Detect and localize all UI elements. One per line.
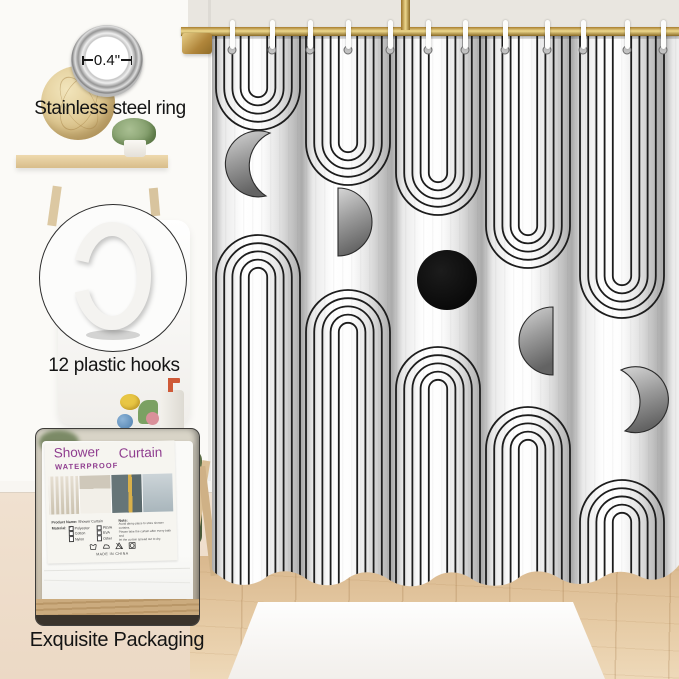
- wall-shelf: [16, 155, 168, 168]
- blue-ball-decor: [117, 414, 133, 429]
- pkg-title-curtain: Curtain: [119, 445, 163, 461]
- curtain-hook: [625, 20, 630, 49]
- plant-pot: [124, 140, 146, 157]
- pkg-note-block: Note: Avoid damp place to store shower c…: [118, 517, 175, 542]
- pink-decor: [146, 412, 159, 425]
- iron-icon: [102, 542, 110, 550]
- curtain-hook: [503, 20, 508, 49]
- curtain-hook: [388, 20, 393, 49]
- shower-curtain: [212, 34, 679, 587]
- pkg-label-card: Shower Curtain WATERPROOF Product Name: …: [44, 440, 177, 563]
- pkg-material-grid: Polyester Cotton Nylon PEVA EVA Other: [68, 525, 112, 542]
- product-photo-canvas: 0.4" Stainless steel ring 12 plastic hoo…: [0, 0, 679, 679]
- material-item: Other: [97, 536, 113, 542]
- measure-line-left: [84, 59, 93, 61]
- rod-wall-bracket: [182, 33, 212, 54]
- yellow-flower-decor: [120, 394, 140, 410]
- hooks-label: 12 plastic hooks: [16, 355, 212, 377]
- packaged-curtain-photo: Shower Curtain WATERPROOF Product Name: …: [35, 428, 200, 626]
- pkg-photo-4: [142, 473, 173, 512]
- no-bleach-icon: [115, 542, 123, 550]
- curtain-hook: [463, 20, 468, 49]
- pkg-product-info: Product Name: Shower Curtain Material: P…: [51, 519, 116, 543]
- pkg-photo-2: [80, 475, 111, 514]
- pkg-waterproof: WATERPROOF: [55, 461, 118, 472]
- wall-corner-shadow: [208, 0, 211, 490]
- dry-icon: [128, 541, 136, 549]
- curtain-hook: [661, 20, 666, 49]
- curtain-fabric-group: [212, 34, 679, 587]
- pkg-bench-shadow: [36, 615, 199, 625]
- full-moon-black-col3: [417, 250, 477, 310]
- curtain-hook: [581, 20, 586, 49]
- ceiling-support-pipe: [401, 0, 410, 30]
- pkg-care-icons: [75, 541, 149, 551]
- pkg-product-name-value: Shower Curtain: [78, 519, 103, 524]
- hook-shadow: [86, 330, 140, 340]
- packaging-label: Exquisite Packaging: [20, 629, 214, 652]
- wash-icon: [89, 542, 97, 550]
- curtain-hook: [230, 20, 235, 49]
- wall-top: [188, 0, 679, 30]
- pkg-material-label: Material:: [52, 526, 67, 543]
- curtain-hook: [426, 20, 431, 49]
- measure-line-right: [121, 59, 130, 61]
- ring-measurement: 0.4": [82, 50, 132, 70]
- hook-body: [80, 229, 144, 323]
- curtain-hook: [270, 20, 275, 49]
- ring-label: Stainless steel ring: [12, 98, 208, 120]
- bath-mat: [215, 595, 615, 679]
- pkg-product-name-label: Product Name:: [51, 520, 77, 525]
- soap-bottle: [160, 390, 184, 432]
- pkg-photo-3: [111, 474, 142, 513]
- plastic-c-hook-icon: [39, 204, 185, 350]
- pkg-made-in: MADE IN CHINA: [47, 550, 177, 557]
- pkg-photo-strip: [48, 473, 173, 514]
- curtain-hook: [545, 20, 550, 49]
- measure-tick-right: [131, 56, 133, 65]
- pkg-photo-1: [48, 476, 79, 515]
- curtain-pleats: [212, 34, 679, 587]
- pkg-title-shower: Shower: [54, 444, 100, 460]
- material-item: Nylon: [69, 536, 90, 542]
- curtain-hook: [308, 20, 313, 49]
- ring-measurement-value: 0.4": [93, 52, 121, 69]
- curtain-hook: [346, 20, 351, 49]
- soap-pump-nozzle: [168, 378, 180, 383]
